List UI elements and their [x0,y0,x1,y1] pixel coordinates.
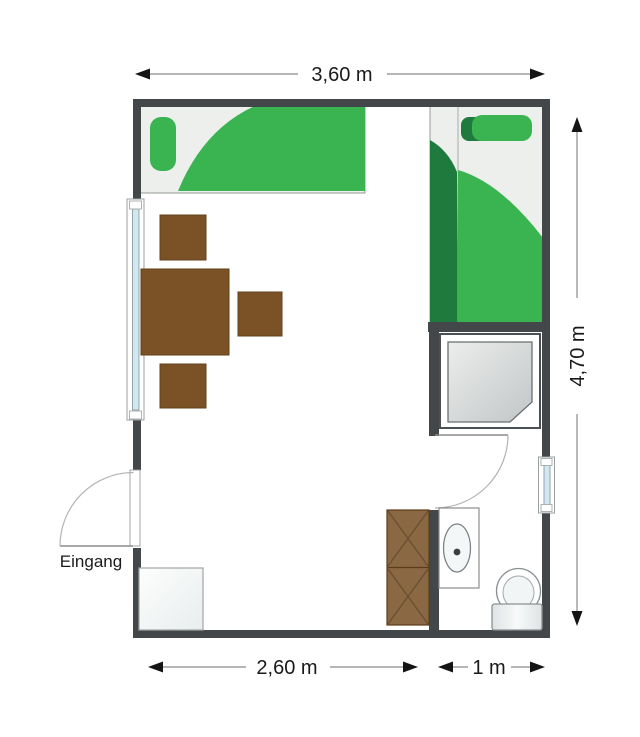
wall-top [133,99,550,107]
dimension-bottom-main: 2,60 m [148,657,418,679]
door-swing-arc [435,435,508,508]
dimension-label-right: 4,70 m [567,325,589,386]
sink-drain [454,549,461,556]
window-cap-bottom [541,505,552,512]
window-glass [133,209,140,410]
dimension-label-top: 3,60 m [311,64,372,86]
bed-pillow [472,115,532,141]
window-glass [544,463,550,507]
shower [440,334,540,428]
window-right [539,457,555,513]
arrow-left-icon [135,69,150,80]
table [141,269,229,355]
wall-divider-vertical-upper [429,332,439,436]
arrow-right-icon [530,69,545,80]
wall-bottom [133,630,550,638]
dimension-bottom-bath: 1 m [438,657,545,679]
wardrobe [387,510,429,625]
toilet-tank [492,604,542,630]
arrow-right-icon [530,662,545,673]
floor-plan-canvas: 3,60 m 4,70 m 2,60 m 1 m Eingang [0,0,640,737]
shower-tray [448,342,532,422]
arrow-left-icon [148,662,163,673]
wall-right [542,99,550,638]
window-cap-top [130,201,142,209]
bed-cover-dark [430,140,458,325]
wall-divider-vertical-lower [429,510,439,630]
window-cap-top [541,459,552,466]
chair-bottom [160,364,206,408]
dimension-label-bottom-main: 2,60 m [256,657,317,679]
arrow-right-icon [403,662,418,673]
dining-set [141,215,282,408]
door-swing-arc [60,473,134,547]
entrance-cabinet [139,568,203,630]
bed-top-right [430,105,543,325]
arrow-up-icon [572,117,583,132]
entrance-label: Eingang [60,552,122,571]
chair-right [238,292,282,336]
dimension-top: 3,60 m [135,64,545,86]
wall-divider-horizontal [428,322,550,332]
sink-basin [444,524,471,572]
bed-top-left [137,103,365,193]
chair-top [160,215,206,260]
window-cap-bottom [130,411,142,419]
door-frame [130,470,140,546]
toilet [492,569,542,631]
bathroom-door [435,435,508,508]
floor-plan-page: 3,60 m 4,70 m 2,60 m 1 m Eingang [0,0,640,737]
dimension-right: 4,70 m [567,117,589,626]
sink [439,508,479,588]
dimension-label-bottom-bath: 1 m [472,657,505,679]
bed-pillow [150,117,176,171]
entry-door [60,470,140,546]
arrow-left-icon [438,662,453,673]
arrow-down-icon [572,611,583,626]
